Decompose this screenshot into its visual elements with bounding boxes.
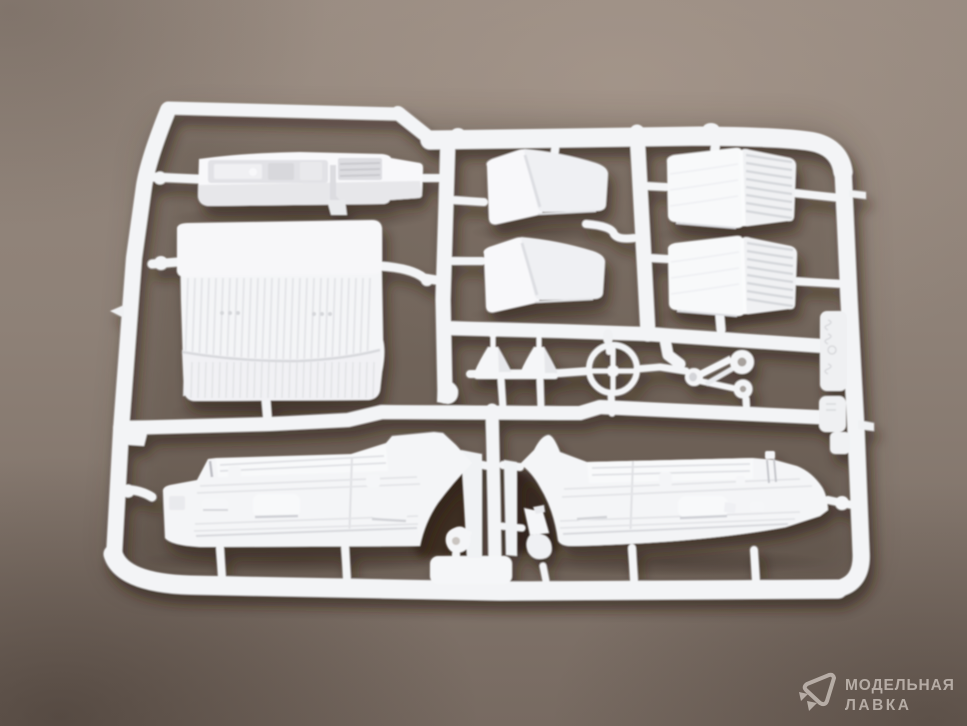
svg-text:МОДЕЛЬНАЯ: МОДЕЛЬНАЯ <box>845 677 955 694</box>
svg-text:ЛАВКА: ЛАВКА <box>845 697 911 714</box>
